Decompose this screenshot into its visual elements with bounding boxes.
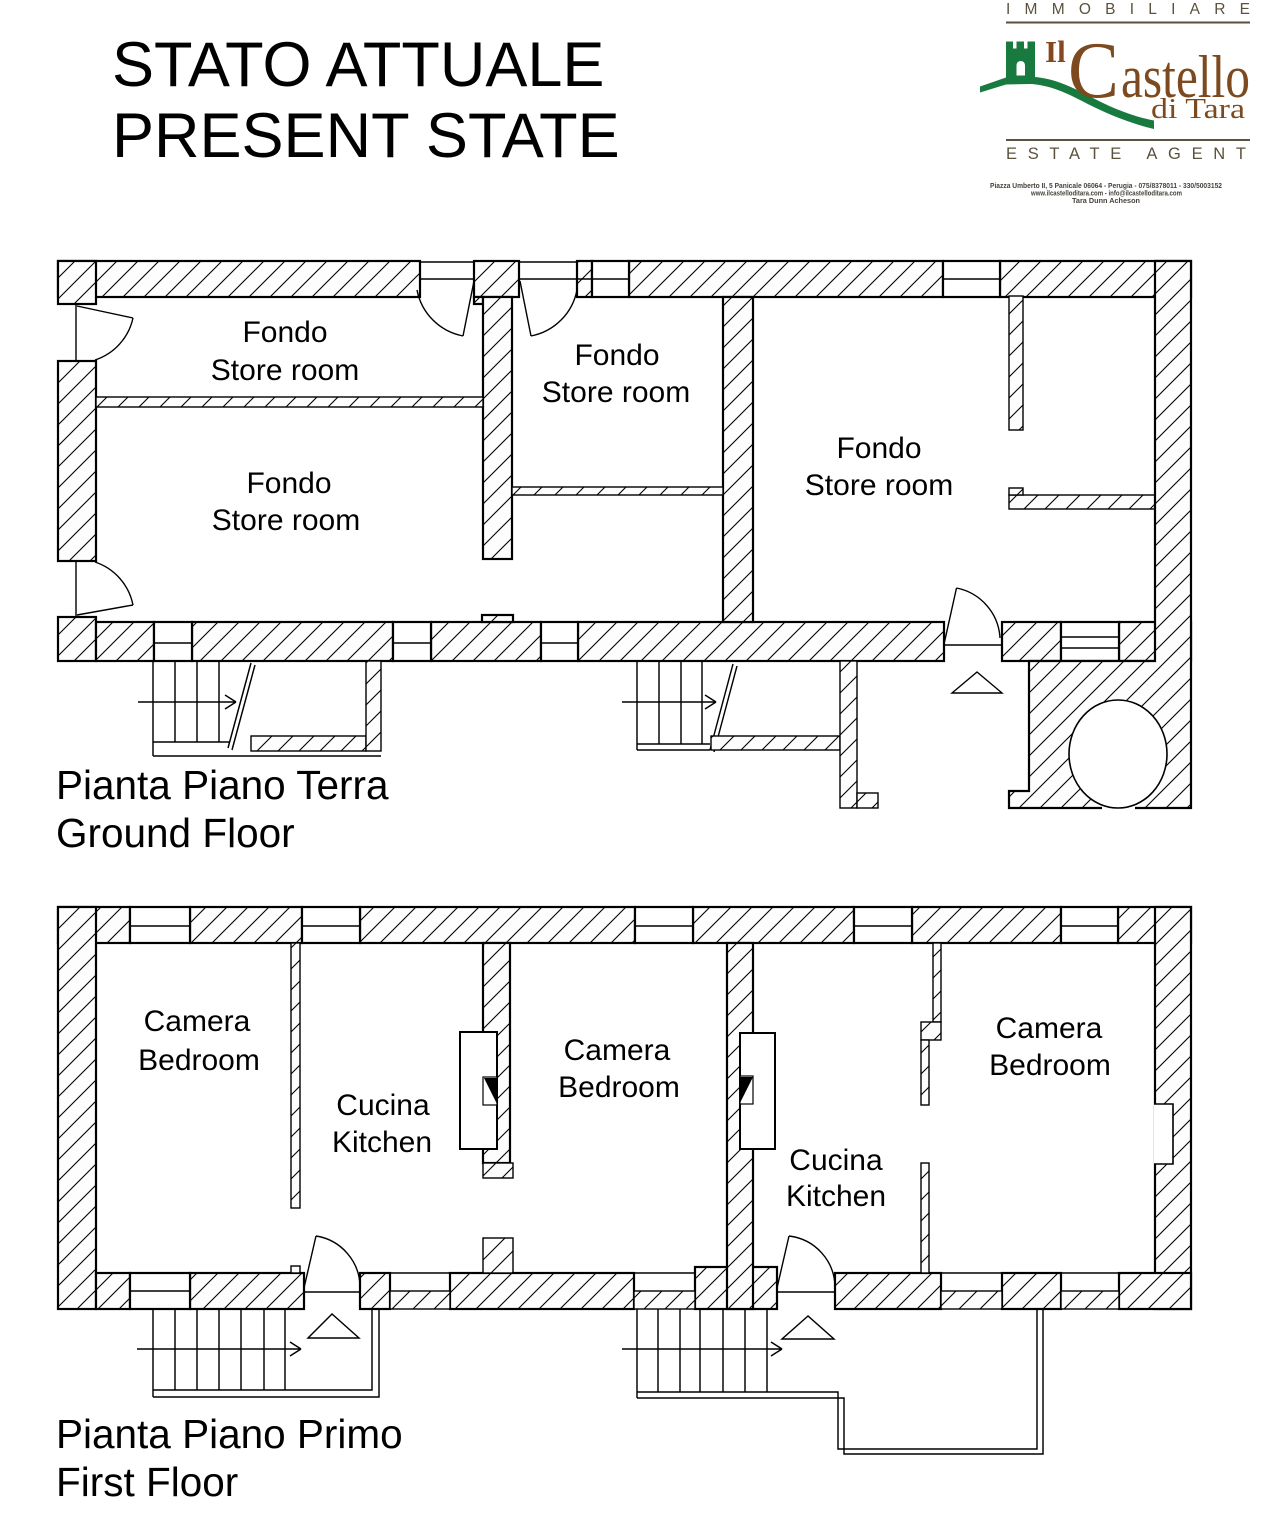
svg-text:Pianta Piano Primo: Pianta Piano Primo [56,1411,403,1457]
svg-text:Store room: Store room [211,354,359,387]
svg-text:Fondo: Fondo [242,316,327,349]
svg-text:PRESENT STATE: PRESENT STATE [112,101,620,171]
svg-text:Pianta Piano Terra: Pianta Piano Terra [56,762,389,808]
svg-text:First Floor: First Floor [56,1459,238,1505]
svg-text:Fondo: Fondo [836,432,921,465]
svg-text:STATO ATTUALE: STATO ATTUALE [112,30,604,100]
svg-text:Bedroom: Bedroom [138,1044,260,1077]
svg-text:Bedroom: Bedroom [989,1049,1111,1082]
svg-text:Fondo: Fondo [574,339,659,372]
svg-text:C: C [1068,27,1119,115]
svg-text:Bedroom: Bedroom [558,1071,680,1104]
svg-text:Kitchen: Kitchen [786,1180,886,1213]
svg-text:Camera: Camera [144,1005,251,1038]
svg-text:Kitchen: Kitchen [332,1126,432,1159]
svg-text:Camera: Camera [564,1034,671,1067]
svg-text:di Tara: di Tara [1151,94,1246,125]
svg-text:Ground Floor: Ground Floor [56,810,295,856]
svg-text:Cucina: Cucina [789,1144,883,1177]
svg-text:Fondo: Fondo [246,467,331,500]
svg-text:Il: Il [1045,34,1066,69]
svg-text:Tara Dunn Acheson: Tara Dunn Acheson [1072,196,1140,205]
svg-text:Store room: Store room [542,376,690,409]
svg-text:Cucina: Cucina [336,1089,430,1122]
svg-text:Store room: Store room [805,469,953,502]
svg-text:Camera: Camera [996,1012,1103,1045]
svg-text:Store room: Store room [212,504,360,537]
